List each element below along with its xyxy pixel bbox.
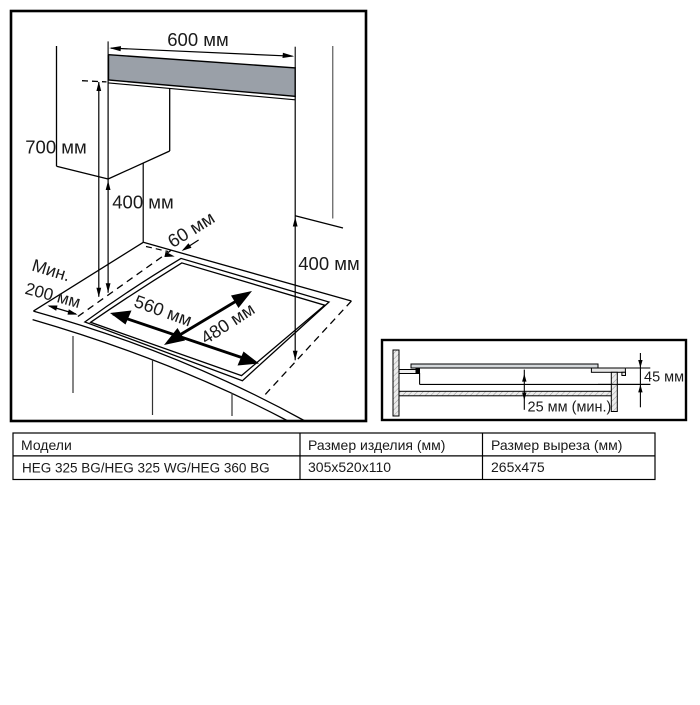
- svg-text:25 мм (мин.): 25 мм (мин.): [528, 400, 612, 416]
- svg-text:Модели: Модели: [21, 437, 72, 453]
- svg-text:Размер изделия (мм): Размер изделия (мм): [308, 437, 445, 453]
- svg-text:400 мм: 400 мм: [298, 253, 359, 274]
- svg-text:Размер выреза (мм): Размер выреза (мм): [491, 437, 622, 453]
- svg-text:600 мм: 600 мм: [167, 29, 228, 50]
- svg-text:265x475: 265x475: [491, 459, 545, 475]
- svg-text:400 мм: 400 мм: [112, 192, 173, 213]
- svg-text:HEG 325 BG/HEG 325 WG/HEG 360: HEG 325 BG/HEG 325 WG/HEG 360 BG: [22, 461, 270, 476]
- svg-text:700 мм: 700 мм: [25, 137, 86, 158]
- svg-text:305x520x110: 305x520x110: [308, 459, 391, 475]
- svg-text:45 мм: 45 мм: [644, 370, 684, 386]
